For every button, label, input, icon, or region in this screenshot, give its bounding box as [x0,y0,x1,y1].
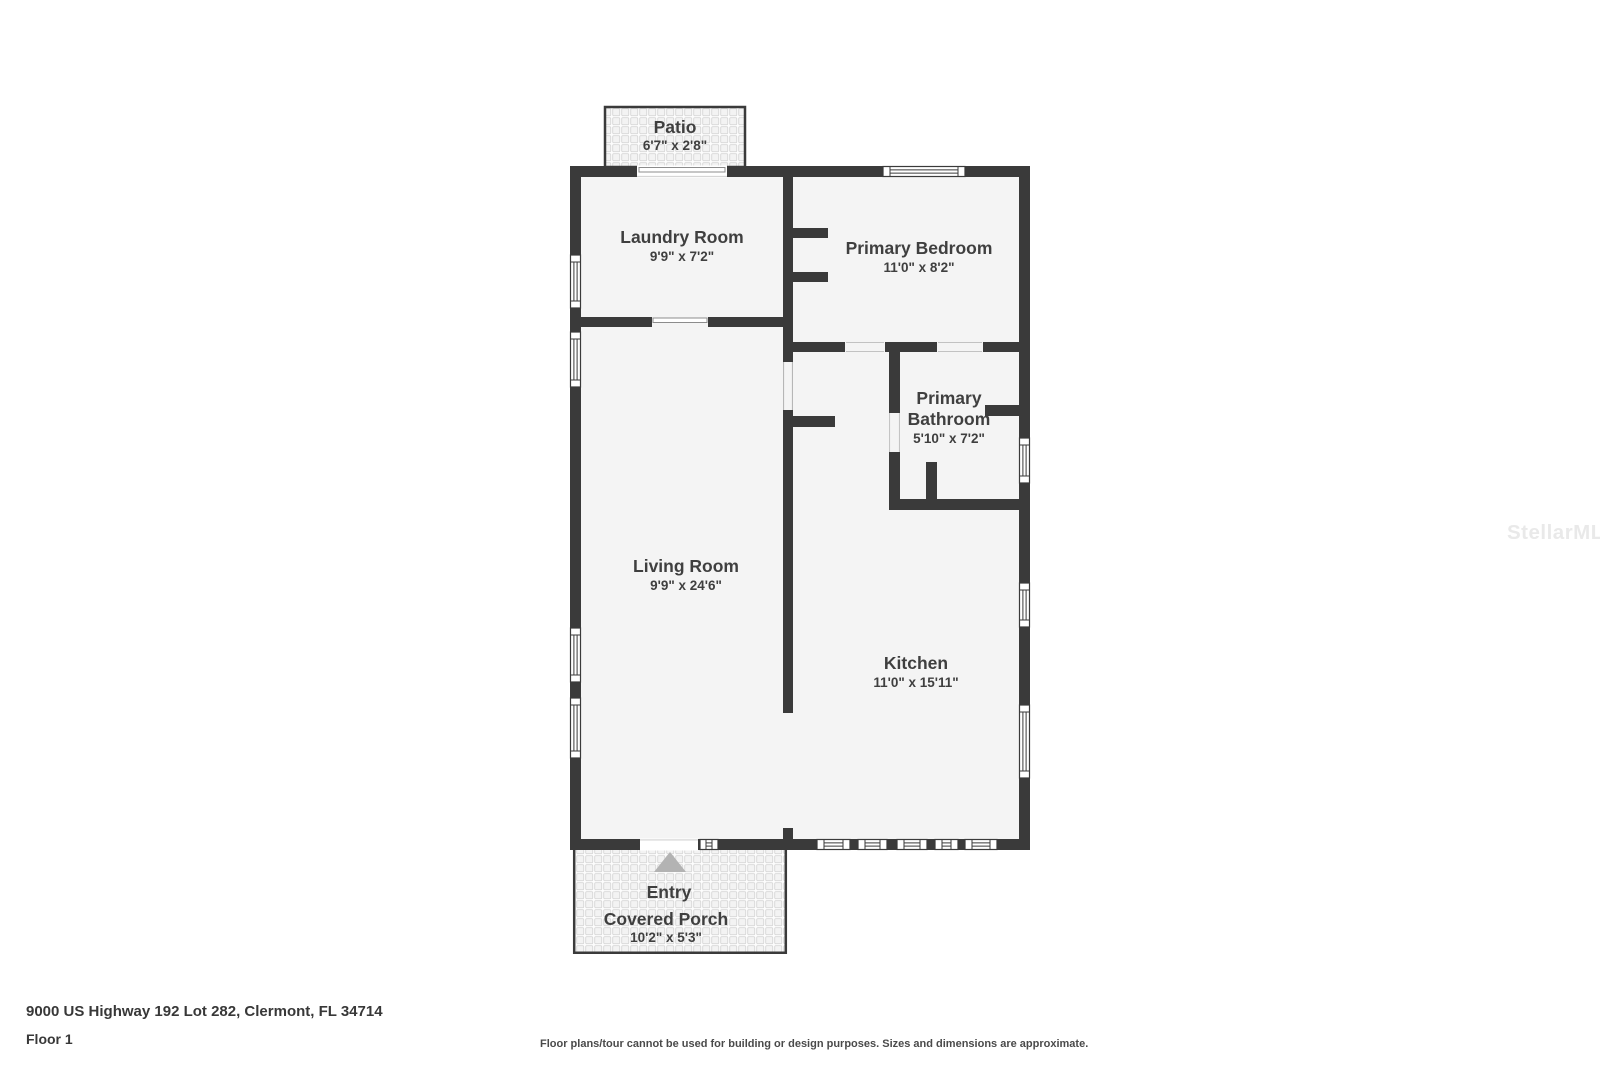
laundry-room-label: Laundry Room [620,227,743,247]
patio-label: Patio [654,117,697,137]
window-symbol [1020,438,1030,483]
disclaimer-text: Floor plans/tour cannot be used for buil… [540,1038,1076,1050]
covered-porch-label: Covered Porch [604,909,728,929]
window-symbol [1020,705,1030,778]
living-room-dims: 9'9" x 24'6" [650,578,722,593]
primary-bedroom-dims: 11'0" x 8'2" [883,260,954,275]
window-symbol [700,840,718,850]
floor-plan-page: Patio 6'7" x 2'8" Laundry Room 9'9" x 7'… [0,0,1600,1066]
living-room-label: Living Room [633,556,739,576]
window-symbol [935,840,958,850]
window-symbol [858,840,887,850]
primary-bathroom-label-line2: Bathroom [908,409,991,429]
window-symbol [817,840,850,850]
patio-dims: 6'7" x 2'8" [643,138,707,153]
window-symbol [883,167,965,177]
laundry-room-dims: 9'9" x 7'2" [650,249,714,264]
window-symbol [571,698,581,758]
primary-bedroom-label: Primary Bedroom [846,238,993,258]
kitchen-label: Kitchen [884,653,948,673]
window-symbol [571,332,581,387]
window-symbol [571,628,581,682]
stellar-mls-watermark: StellarMLS [1507,521,1600,545]
covered-porch-dims: 10'2" x 5'3" [630,930,702,945]
floor-plan: Patio 6'7" x 2'8" Laundry Room 9'9" x 7'… [0,0,1600,1066]
primary-bathroom-label-line1: Primary [916,388,981,408]
patio-area [605,107,745,167]
primary-bathroom-dims: 5'10" x 7'2" [913,431,985,446]
entry-label: Entry [647,882,692,902]
window-symbol [897,840,927,850]
address-text: 9000 US Highway 192 Lot 282, Clermont, F… [26,1003,383,1020]
window-symbol [571,255,581,308]
kitchen-dims: 11'0" x 15'11" [873,675,958,690]
floor-label: Floor 1 [26,1031,73,1047]
window-symbol [965,840,997,850]
window-symbol [1020,583,1030,627]
